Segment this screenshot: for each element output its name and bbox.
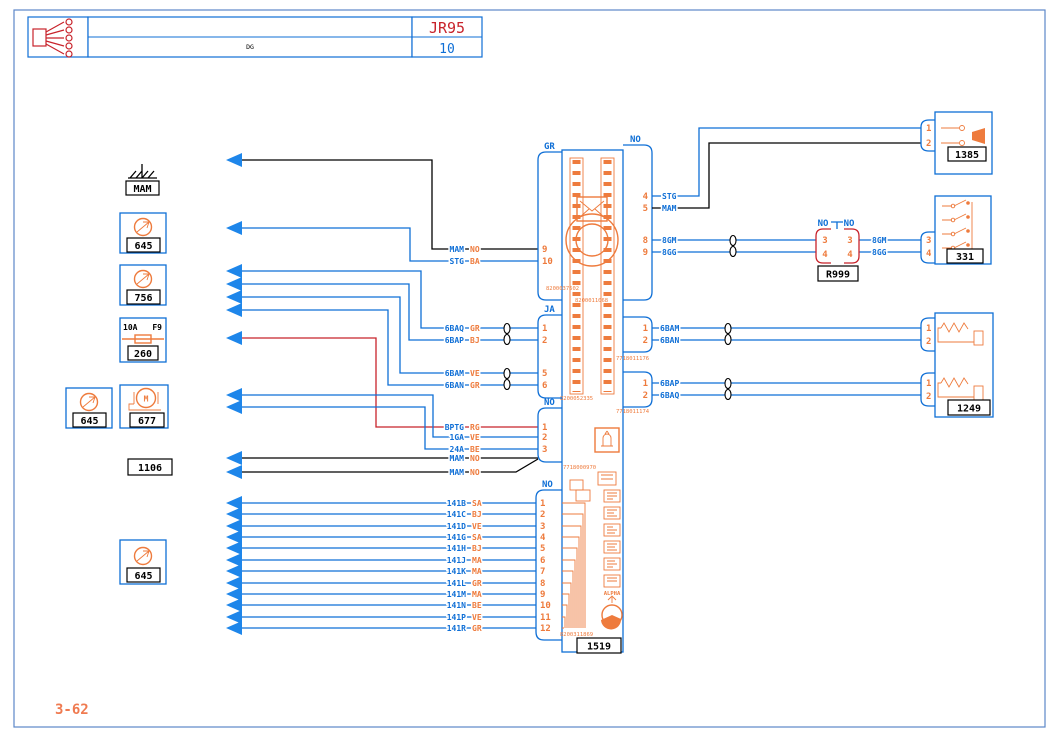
wire-6ban: [242, 310, 538, 385]
wire-name: 8GG: [662, 248, 677, 257]
wire-color: GR: [470, 381, 480, 390]
wire-name: BPTG: [445, 423, 464, 432]
component-645-a: 645: [120, 213, 166, 253]
twisted-pair-icon: [730, 236, 736, 257]
component-331-switches: 3 4 331: [921, 196, 991, 264]
pin-number: 2: [542, 433, 547, 443]
wire-name: 141B: [447, 499, 466, 508]
wire-color: VE: [470, 433, 480, 442]
wire-24a: [242, 407, 538, 449]
wire-name: 141G: [447, 533, 466, 542]
part-number: 8200311869: [560, 632, 593, 638]
connector-ja: JA 1 2 5 6: [538, 305, 562, 398]
wire-name: 141N: [447, 601, 466, 610]
wire-stg-pin10: [242, 228, 538, 261]
left-wire-labels: MAM NO STG BA 6BAQ GR 6BAP BJ 6BAM VE 6B…: [445, 245, 482, 633]
wire-name: 141H: [447, 544, 466, 553]
wire-name: 6BAQ: [445, 324, 464, 333]
left-wires: [242, 160, 538, 628]
pin-number: 1: [643, 379, 648, 389]
wire-name: 6BAQ: [660, 391, 679, 400]
wire-color: RG: [470, 423, 480, 432]
pin-number: 10: [540, 601, 551, 611]
wire-name: 6BAN: [660, 336, 679, 345]
component-677-motor: M 677: [120, 385, 168, 428]
part-number: 7718011176: [616, 356, 649, 362]
pin-number: 12: [540, 624, 551, 634]
wire-6baq: [242, 271, 538, 328]
wire-color: GR: [472, 624, 482, 633]
offpage-arrows: [226, 153, 242, 635]
fuse-rating: 10A: [123, 323, 138, 332]
wire-name: 1GA: [450, 433, 465, 442]
wire-1ga: [242, 395, 538, 437]
pin-number: 9: [540, 590, 545, 600]
component-label: 260: [134, 349, 152, 360]
offpage-arrow: [226, 553, 242, 567]
offpage-arrow: [226, 451, 242, 465]
offpage-arrow: [226, 530, 242, 544]
wire-6bap: [242, 284, 538, 340]
pin-number: 4: [540, 533, 546, 543]
wire-name: 141J: [447, 556, 466, 565]
pin-number: 4: [643, 192, 649, 202]
offpage-arrow: [226, 153, 242, 167]
component-645-b: 645: [66, 388, 112, 428]
wire-name: MAM: [662, 204, 677, 213]
pin-number: 2: [643, 336, 648, 346]
pin-number: 3: [847, 236, 852, 246]
offpage-arrow: [226, 598, 242, 612]
wire-color: SA: [472, 533, 482, 542]
pin-number: 3: [822, 236, 827, 246]
connector-right-2: 1 2: [623, 372, 652, 407]
wire-name: STG: [662, 192, 677, 201]
twisted-pair-icon: [725, 379, 731, 400]
offpage-arrow: [226, 496, 242, 510]
wire-name: 141C: [447, 510, 466, 519]
wire-color: MA: [472, 590, 482, 599]
wire-name: 8GM: [872, 236, 887, 245]
pin-number: 2: [926, 337, 931, 347]
sheet-number: 10: [439, 42, 455, 57]
twisted-pair-icon: [504, 324, 510, 345]
component-label: 756: [134, 293, 152, 304]
offpage-arrow: [226, 277, 242, 291]
wire-stg-right: [652, 128, 921, 196]
pin-number: 3: [540, 522, 545, 532]
component-1106-tag: 1106: [128, 459, 172, 475]
pin-number: 2: [540, 510, 545, 520]
wire-name: 6BAM: [660, 324, 679, 333]
offpage-arrow: [226, 465, 242, 479]
wire-color: BJ: [472, 544, 482, 553]
component-1249-resistors: 1 2 1 2 1249: [921, 313, 993, 417]
offpage-arrow: [226, 331, 242, 345]
wire-name: 141D: [447, 522, 466, 531]
wire-name: STG: [450, 257, 465, 266]
component-r999-inline: NO NO 3 4 3 4 R999: [816, 219, 859, 281]
offpage-arrow: [226, 388, 242, 402]
component-645-c: 645: [120, 540, 166, 584]
connector-label: NO: [844, 219, 855, 229]
wire-name: 8GG: [872, 248, 887, 257]
pin-number: 10: [542, 257, 553, 267]
wire-color: NO: [470, 454, 480, 463]
pin-number: 1: [542, 423, 547, 433]
pin-number: 5: [542, 369, 547, 379]
pin-number: 1: [926, 324, 931, 334]
offpage-arrow: [226, 221, 242, 235]
wire-name: MAM: [450, 454, 465, 463]
component-label: 645: [80, 416, 98, 427]
offpage-arrow: [226, 587, 242, 601]
component-label: 1385: [955, 150, 979, 161]
pin-number: 11: [540, 613, 551, 623]
wire-color: NO: [470, 245, 480, 254]
pin-number: 2: [926, 139, 931, 149]
ground-icon: [128, 164, 157, 178]
pin-number: 9: [542, 245, 547, 255]
ground-label: MAM: [133, 184, 151, 195]
component-260-fuse: 10A F9 260: [120, 318, 166, 362]
pin-number: 1: [542, 324, 547, 334]
connector-no-mid: NO 1 2 3: [538, 398, 562, 462]
pin-number: 1: [926, 379, 931, 389]
wire-color: GR: [470, 324, 480, 333]
offpage-arrow: [226, 610, 242, 624]
wiring-diagram: DG JR95 10 MAM 645 756 10A F9: [0, 0, 1058, 737]
pin-number: 2: [926, 392, 931, 402]
pin-number: 2: [542, 336, 547, 346]
wire-color: BE: [470, 445, 480, 454]
wire-name: 141M: [447, 590, 466, 599]
part-number: 8200037602: [546, 286, 579, 292]
pin-number: 3: [926, 236, 931, 246]
offpage-arrow: [226, 541, 242, 555]
offpage-arrow: [226, 507, 242, 521]
pin-number: 8: [540, 579, 545, 589]
wire-name: 6BAP: [445, 336, 464, 345]
wire-mam-right: [652, 143, 921, 208]
ground-symbol: MAM: [126, 164, 159, 195]
module-label: 1519: [587, 642, 611, 653]
wire-name: 6BAN: [445, 381, 464, 390]
connector-right-1: 1 2: [623, 317, 652, 352]
wire-color: VE: [470, 369, 480, 378]
connector-label: NO: [818, 219, 829, 229]
pin-number: 4: [926, 249, 932, 259]
mating-tick: [831, 222, 843, 229]
title-block: DG JR95 10: [28, 17, 482, 57]
wire-color: VE: [472, 522, 482, 531]
offpage-arrow: [226, 576, 242, 590]
page-reference: 3-62: [55, 702, 89, 718]
pin-number: 6: [540, 556, 545, 566]
wire-name: 141P: [447, 613, 466, 622]
part-number: 8200011068: [575, 298, 608, 304]
offpage-arrow: [226, 264, 242, 278]
component-label: 645: [134, 241, 152, 252]
wire-color: VE: [472, 613, 482, 622]
wire-name: 8GM: [662, 236, 677, 245]
pin-number: 1: [540, 499, 545, 509]
connector-label: JA: [544, 305, 555, 315]
connector-no-bottom: NO 1 2 3 4 5 6 7 8 9 10 11 12: [536, 480, 562, 640]
part-number: 7718000970: [563, 465, 596, 471]
module-1519: 8200037602 8200011068 8200052335 7718011…: [536, 135, 652, 653]
component-label: R999: [826, 270, 850, 281]
twisted-pair-icon: [504, 369, 510, 390]
wire-color: NO: [470, 468, 480, 477]
pin-number: 9: [643, 248, 648, 258]
wire-color: BJ: [470, 336, 480, 345]
diagram-code: DG: [246, 43, 254, 51]
part-number: 7718011174: [616, 409, 650, 415]
page-border: [14, 10, 1045, 727]
pin-number: 4: [847, 250, 853, 260]
component-label: 645: [134, 571, 152, 582]
offpage-arrow: [226, 400, 242, 414]
offpage-arrow: [226, 290, 242, 304]
wire-name: 141R: [447, 624, 466, 633]
wire-color: MA: [472, 556, 482, 565]
wire-name: 6BAM: [445, 369, 464, 378]
wire-name: 141L: [447, 579, 466, 588]
pin-number: 5: [643, 204, 648, 214]
pin-number: 2: [643, 391, 648, 401]
offpage-arrow: [226, 564, 242, 578]
twisted-pair-icon: [725, 324, 731, 345]
wire-color: MA: [472, 567, 482, 576]
connector-no-right: NO 4 5 8 9: [623, 135, 652, 300]
component-756: 756: [120, 265, 166, 305]
wire-6bam: [242, 297, 538, 373]
wire-name: 24A: [450, 445, 465, 454]
pin-number: 3: [542, 445, 547, 455]
offpage-arrow: [226, 621, 242, 635]
wire-name: 6BAP: [660, 379, 679, 388]
wire-name: 141K: [447, 567, 466, 576]
connector-label: NO: [544, 398, 555, 408]
wire-color: BA: [470, 257, 480, 266]
pin-number: 1: [926, 124, 931, 134]
pin-number: 8: [643, 236, 648, 246]
component-label: 1106: [138, 463, 162, 474]
connector-label: NO: [630, 135, 641, 145]
component-label: 331: [956, 252, 974, 263]
component-label: 677: [138, 416, 156, 427]
fuse-slot: F9: [152, 323, 162, 332]
connector-label: GR: [544, 142, 555, 152]
wire-bptg: [242, 338, 538, 427]
diagram-ref: JR95: [429, 19, 465, 37]
component-label: 1249: [957, 404, 981, 415]
right-wires: STG MAM 8GM 8GG 8GM 8GG 6BAM 6BAN 6BAP 6…: [652, 128, 921, 400]
pin-number: 6: [542, 381, 547, 391]
wire-color: SA: [472, 499, 482, 508]
wire-color: BJ: [472, 510, 482, 519]
pin-number: 4: [822, 250, 828, 260]
pin-number: 5: [540, 544, 545, 554]
connector-gr: GR 9 10: [538, 142, 562, 300]
offpage-arrow: [226, 519, 242, 533]
component-1385-horn: 1 2 1385: [921, 112, 992, 174]
wire-mam-2: [242, 459, 538, 472]
motor-symbol: M: [144, 395, 149, 404]
part-number: 8200052335: [560, 396, 593, 402]
pin-number: 1: [643, 324, 648, 334]
wire-mam-pin9: [242, 160, 538, 249]
connector-label: NO: [542, 480, 553, 490]
wire-name: MAM: [450, 468, 465, 477]
wire-name: MAM: [450, 245, 465, 254]
offpage-arrow: [226, 303, 242, 317]
wire-color: BE: [472, 601, 482, 610]
pin-number: 7: [540, 567, 545, 577]
wire-color: GR: [472, 579, 482, 588]
